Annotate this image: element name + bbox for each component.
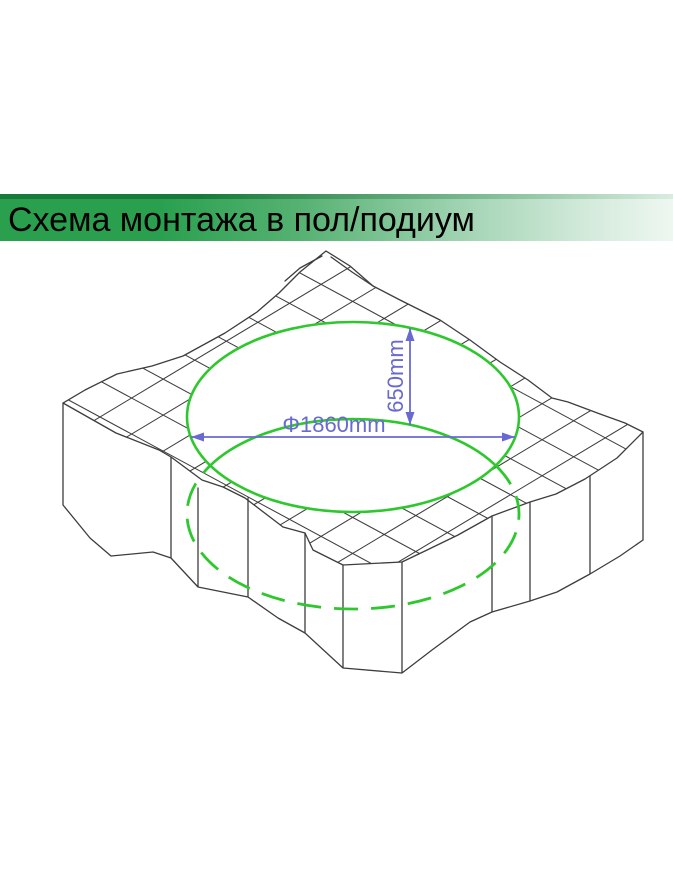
- depth-dimension: 650mm: [383, 328, 415, 425]
- diameter-dimension-label: Φ1860mm: [282, 412, 385, 437]
- broken-edge-sliver-lines: [285, 256, 373, 286]
- installation-diagram: Φ1860mm 650mm: [0, 0, 673, 881]
- depth-dimension-label: 650mm: [383, 339, 408, 412]
